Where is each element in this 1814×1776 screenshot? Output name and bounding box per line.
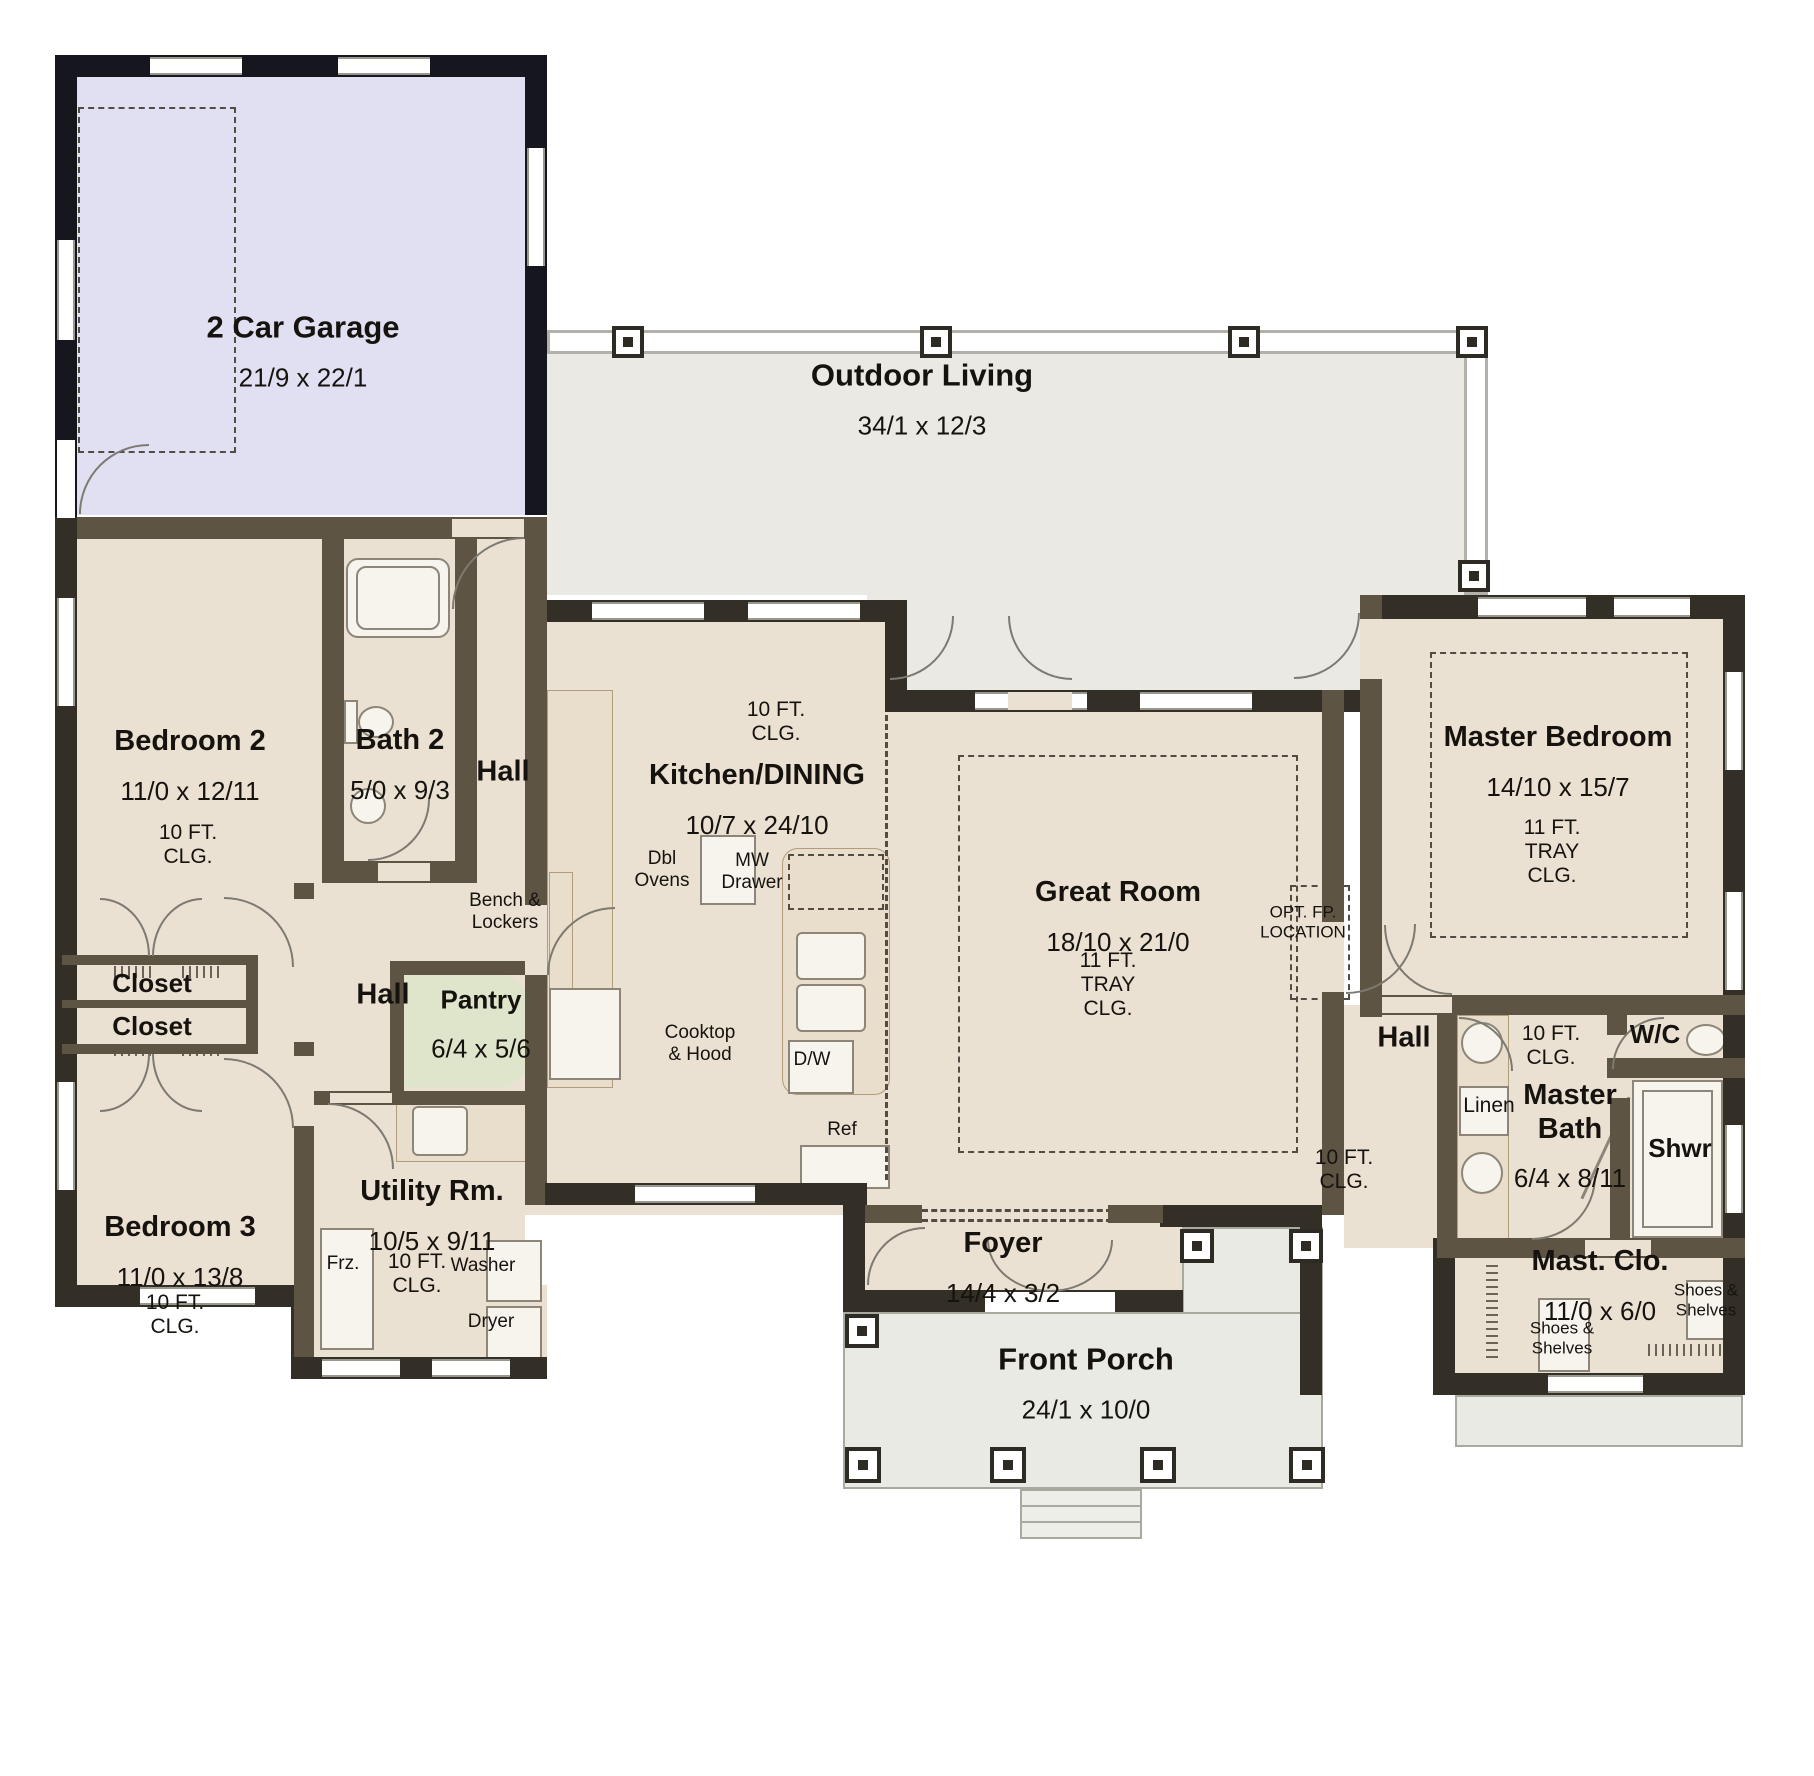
- opt-fireplace-note: OPT. FP. LOCATION: [1260, 902, 1346, 941]
- masterclo-rod-b1: [1648, 1344, 1692, 1356]
- utility-window-b: [432, 1359, 510, 1377]
- greatroom-wall-top: [885, 690, 1365, 712]
- bedroom3-dims: 11/0 x 13/8: [104, 1263, 255, 1293]
- garage-dims: 21/9 x 22/1: [207, 364, 400, 394]
- kitchen-title: Kitchen/DINING: [649, 759, 865, 792]
- kitchen-dims: 10/7 x 24/10: [649, 811, 865, 841]
- utility-sink: [412, 1106, 468, 1156]
- utility-door-opening: [330, 1093, 392, 1103]
- dryer-note: Dryer: [468, 1311, 514, 1333]
- garage-wall-right: [525, 55, 547, 515]
- porch-stoop: [1455, 1395, 1743, 1447]
- hall-mid-label: Hall: [356, 978, 409, 1011]
- shoes-shelves-a-note: Shoes & Shelves: [1674, 1280, 1738, 1319]
- shower-label: Shwr: [1648, 1134, 1712, 1164]
- bench-lockers-note: Bench & Lockers: [469, 890, 541, 934]
- bedroom2-label: Bedroom 2 11/0 x 12/11: [114, 707, 265, 825]
- bedroom2-title: Bedroom 2: [114, 725, 265, 758]
- garage-window-left: [57, 240, 75, 340]
- master-bedroom-title: Master Bedroom: [1444, 721, 1673, 754]
- bedroom3-door-opening: [294, 1056, 314, 1126]
- mw-drawer-box: [788, 854, 884, 910]
- foyer-title: Foyer: [946, 1227, 1060, 1260]
- shoes-shelves-b-note: Shoes & Shelves: [1530, 1318, 1594, 1357]
- porchnotch-wall-top: [1160, 1205, 1322, 1227]
- outdoor-wall-right: [1464, 330, 1488, 595]
- garage-vestibule-door-opening: [452, 519, 524, 537]
- closet-wall-end: [246, 955, 258, 1054]
- bath2-dims: 5/0 x 9/3: [350, 776, 450, 806]
- kitchen-ceiling-break-dashed: [885, 715, 888, 1180]
- wc-toilet-bowl: [1686, 1024, 1726, 1056]
- front-porch-label: Front Porch 24/1 x 10/0: [998, 1324, 1174, 1445]
- cooktop-hood-note: Cooktop & Hood: [665, 1022, 736, 1066]
- freezer-note: Frz.: [327, 1253, 360, 1275]
- bathtub-inner: [356, 566, 440, 630]
- cooktop-box: [549, 988, 621, 1080]
- masterclo-window-bottom: [1548, 1375, 1643, 1393]
- porch-steps: [1020, 1489, 1142, 1539]
- wc-wall-left: [1607, 1015, 1627, 1035]
- master-bath-title: Master Bath: [1514, 1080, 1626, 1147]
- kitchen-ceiling-note: 10 FT. CLG.: [747, 698, 805, 746]
- greatroom-patio-door-opening: [1008, 692, 1072, 710]
- washer-note: Washer: [451, 1255, 516, 1277]
- dishwasher-note: D/W: [794, 1049, 831, 1071]
- utility-window-a: [322, 1359, 400, 1377]
- garage-window-top-a: [150, 57, 242, 75]
- bath2-wall-left: [322, 517, 344, 883]
- pantry-title: Pantry: [431, 986, 531, 1016]
- utility-title: Utility Rm.: [360, 1175, 503, 1208]
- porch-column-1: [845, 1447, 881, 1483]
- porch-column-7: [845, 1314, 879, 1348]
- master-door-opening: [1382, 997, 1452, 1013]
- bath2-door-opening: [378, 863, 430, 881]
- master-window-right-a: [1725, 672, 1743, 770]
- bedroom3-title: Bedroom 3: [104, 1211, 255, 1244]
- island-sink-a: [796, 932, 866, 980]
- master-bath-dims: 6/4 x 8/11: [1514, 1165, 1626, 1195]
- greatroom-window-b: [1140, 692, 1252, 710]
- pantry-dims: 6/4 x 5/6: [431, 1034, 531, 1064]
- closet-b-label: Closet: [112, 1012, 191, 1042]
- island-sink-b: [796, 984, 866, 1032]
- porch-column-3: [1140, 1447, 1176, 1483]
- hall-top-label: Hall: [476, 755, 529, 788]
- porch-column-6: [1289, 1229, 1323, 1263]
- bedroom3-ceiling-note: 10 FT. CLG.: [146, 1291, 204, 1339]
- outdoor-post-1: [612, 326, 644, 358]
- great-room-ceiling-note: 11 FT. TRAY CLG.: [1080, 949, 1137, 1021]
- foyer-wall-left: [843, 1205, 865, 1312]
- wc-label: W/C: [1630, 1020, 1681, 1050]
- vanity-wall-left: [1437, 1015, 1457, 1240]
- bedroom2-window-left: [57, 598, 75, 706]
- hall-right-ceiling-note: 10 FT. CLG.: [1315, 1146, 1373, 1194]
- foyer-label: Foyer 14/4 x 3/2: [946, 1209, 1060, 1327]
- floor-plan-canvas: 2 Car Garage 21/9 x 22/1 Outdoor Living …: [0, 0, 1814, 1776]
- garage-wall-top: [55, 55, 547, 77]
- master-window-top-b: [1614, 597, 1690, 617]
- outdoor-living-dims: 34/1 x 12/3: [811, 412, 1033, 442]
- master-bath-label: Master Bath 6/4 x 8/11: [1514, 1061, 1626, 1213]
- shower-window-right: [1725, 1125, 1743, 1213]
- hall-bedroom2-stub: [294, 883, 314, 899]
- kitchen-window-b: [748, 602, 860, 620]
- foyer-stub-right: [1108, 1205, 1163, 1223]
- outdoor-post-4: [1456, 326, 1488, 358]
- garage-title: 2 Car Garage: [207, 310, 400, 346]
- outdoor-living-label: Outdoor Living 34/1 x 12/3: [811, 340, 1033, 461]
- masterclo-rod-left: [1486, 1262, 1498, 1358]
- outdoor-post-3: [1228, 326, 1260, 358]
- master-bedroom-label: Master Bedroom 14/10 x 15/7: [1444, 703, 1673, 821]
- bedroom2-door-opening: [294, 899, 314, 961]
- utility-ceiling-note: 10 FT. CLG.: [388, 1250, 446, 1298]
- master-outdoor-door-opening: [1360, 619, 1382, 679]
- closet-wall-bottom: [62, 1044, 254, 1054]
- garage-window-right: [527, 148, 545, 266]
- bedroom2-ceiling-note: 10 FT. CLG.: [159, 821, 217, 869]
- vanity-sink-b: [1461, 1152, 1503, 1194]
- master-window-top-a: [1478, 597, 1586, 617]
- front-porch-title: Front Porch: [998, 1342, 1174, 1378]
- outdoor-living-title: Outdoor Living: [811, 358, 1033, 394]
- outdoor-post-5: [1458, 560, 1490, 592]
- porch-column-5: [1180, 1229, 1214, 1263]
- garage-label: 2 Car Garage 21/9 x 22/1: [207, 292, 400, 413]
- foyer-stub-left: [865, 1205, 922, 1223]
- linen-label: Linen: [1463, 1094, 1514, 1118]
- master-window-right-b: [1725, 892, 1743, 990]
- fridge-note: Ref: [827, 1119, 857, 1141]
- master-wall-left-a: [1360, 595, 1382, 619]
- master-bedroom-dims: 14/10 x 15/7: [1444, 773, 1673, 803]
- kitchen-window-a: [592, 602, 704, 620]
- dbl-ovens-note: Dbl Ovens: [635, 848, 690, 892]
- closet-a-label: Closet: [112, 969, 191, 999]
- hall-right-label: Hall: [1377, 1021, 1430, 1054]
- pantry-label: Pantry 6/4 x 5/6: [431, 968, 531, 1083]
- garage-window-top-b: [338, 57, 430, 75]
- porch-column-4: [1289, 1447, 1325, 1483]
- foyer-dims: 14/4 x 3/2: [946, 1279, 1060, 1309]
- porch-column-2: [990, 1447, 1026, 1483]
- masterclo-wall-left: [1433, 1238, 1455, 1395]
- bedroom2-dims: 11/0 x 12/11: [114, 777, 265, 807]
- master-bedroom-ceiling-note: 11 FT. TRAY CLG.: [1524, 816, 1581, 888]
- master-closet-title: Mast. Clo.: [1532, 1245, 1669, 1278]
- bath2-title: Bath 2: [350, 724, 450, 757]
- front-porch-dims: 24/1 x 10/0: [998, 1396, 1174, 1426]
- bedroom3-window-left: [57, 1082, 75, 1190]
- garage-sidedoor-opening: [57, 440, 75, 518]
- closet-wall-mid: [62, 1000, 254, 1008]
- bath2-label: Bath 2 5/0 x 9/3: [350, 706, 450, 824]
- great-room-title: Great Room: [1035, 876, 1201, 909]
- kitchen-label: Kitchen/DINING 10/7 x 24/10: [649, 741, 865, 859]
- kitchen-window-bottom: [635, 1185, 755, 1203]
- mw-drawer-note: MW Drawer: [721, 850, 782, 894]
